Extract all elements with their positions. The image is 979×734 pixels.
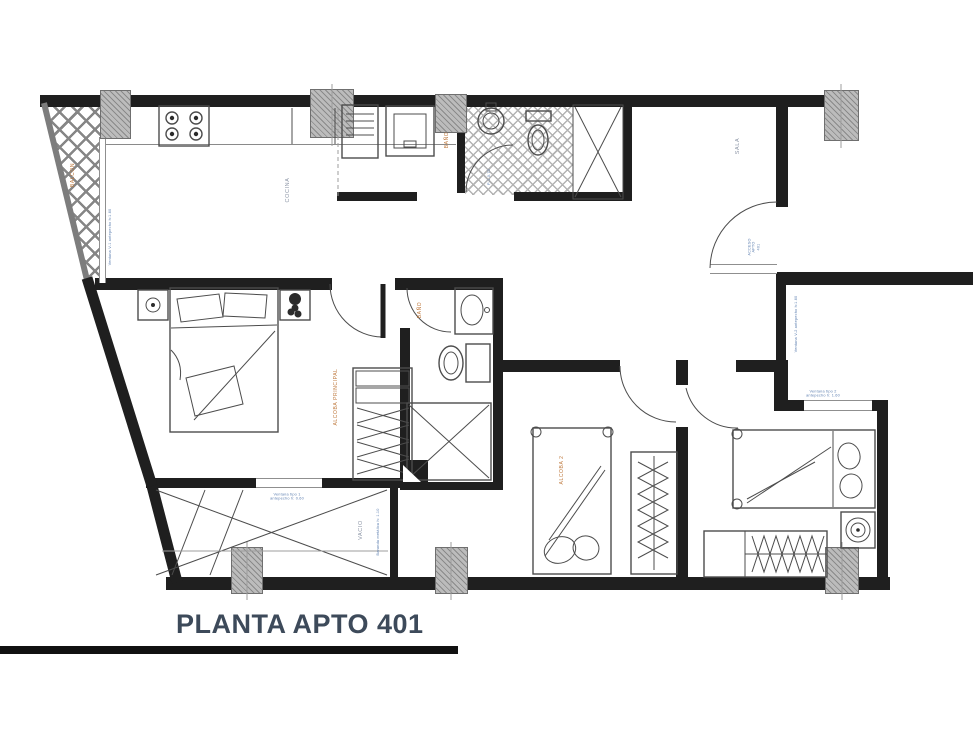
annotation-bath1-door: P-1 0.70 — [487, 169, 491, 185]
room-label-cocina: COCINA — [285, 178, 291, 203]
closet-icon — [631, 452, 677, 574]
void-cross — [156, 490, 388, 575]
double-bed-icon — [170, 288, 278, 432]
annotation-window-bedroom1: Ventana tipo 1 antepecho h: 0.60 — [270, 493, 304, 502]
annotation-window-balcony: Ventana V-1 antepecho h:1.60 — [108, 209, 112, 266]
single-bed-icon — [531, 427, 613, 574]
column-axis-ticks — [247, 84, 842, 600]
sink-icon — [455, 288, 493, 334]
annotation-window-bedroom3: Ventana tipo 2 antepecho h: 1.60 — [806, 390, 840, 399]
side-table-icon — [841, 512, 875, 548]
annotation-window-corridor: Ventana V-2 antepecho h:1.60 — [794, 296, 798, 353]
room-label-alcoba-principal: ALCOBA PRINCIPAL — [333, 368, 339, 425]
nightstand-icon — [280, 290, 310, 320]
label-acceso-apto: ACCESO APTO 401 — [747, 238, 760, 255]
door-arc-entry — [710, 202, 777, 268]
duct-cross — [573, 105, 623, 199]
counter-divider — [292, 108, 335, 144]
single-bed-icon — [732, 429, 875, 509]
floor-plan-sheet: BALCON Ventana V-1 antepecho h:1.60 COCI… — [0, 0, 979, 734]
room-label-bano-privado: BAÑO — [417, 302, 423, 319]
closet-icon — [704, 531, 827, 577]
annotation-baranda-vacio: Baranda metálica h: 1.10 — [376, 508, 380, 555]
room-label-sala: SALA — [735, 138, 741, 154]
sink-icon — [478, 103, 504, 134]
door-arc-bedroom1 — [330, 284, 383, 338]
room-label-alcoba-2: ALCOBA 2 — [559, 456, 565, 485]
wall-left-diagonal — [87, 278, 177, 582]
closet-icon — [353, 368, 412, 480]
fridge-icon — [342, 105, 378, 158]
toilet-icon — [526, 111, 551, 155]
stove-icon — [159, 106, 209, 146]
room-label-balcon: BALCON — [70, 163, 76, 187]
plan-title: PLANTA APTO 401 — [176, 609, 424, 640]
nightstand-icon — [138, 290, 168, 320]
plan-linework — [0, 0, 979, 734]
shower-icon — [403, 403, 491, 482]
wall-balcony-diagonal — [44, 103, 87, 280]
room-label-bano-social: BAÑO — [444, 132, 450, 149]
door-arc-alcoba3 — [686, 388, 738, 428]
room-label-vacio: VACIO — [358, 520, 364, 540]
door-arc-alcoba2 — [620, 366, 676, 422]
oven-icon — [386, 106, 434, 156]
door-arc-bath2 — [407, 288, 451, 332]
toilet-icon — [439, 344, 490, 382]
